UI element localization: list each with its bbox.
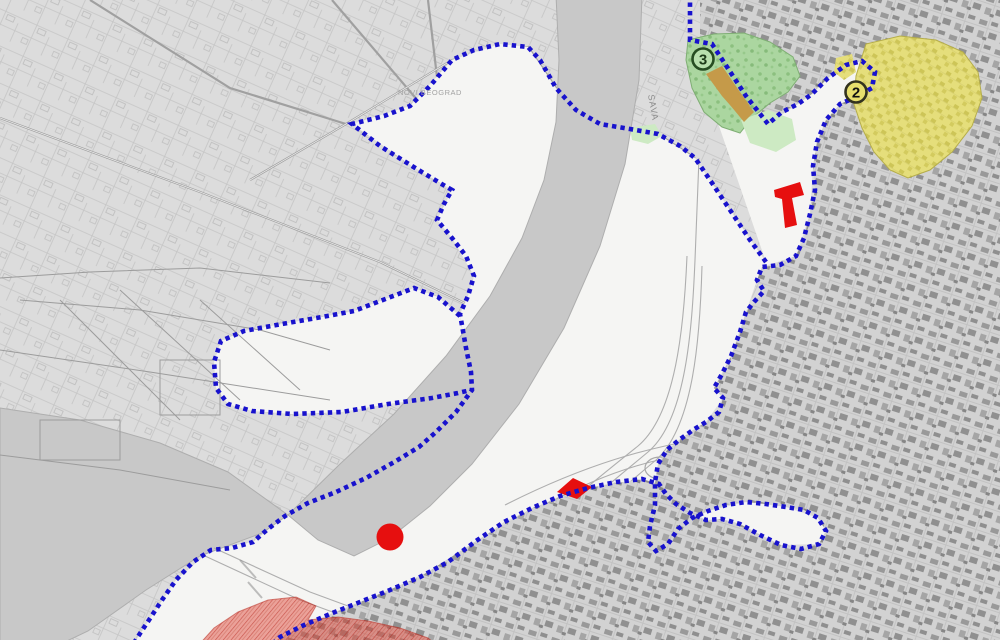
marker-2-number: 2 — [852, 84, 860, 101]
marker-3-badge: 3 — [693, 49, 714, 70]
map-canvas: 3 2 SAVA NOVI BEOGRAD — [0, 0, 1000, 640]
red-site-circle — [377, 524, 404, 551]
marker-3-number: 3 — [699, 51, 707, 68]
district-label: NOVI BEOGRAD — [398, 88, 462, 97]
marker-2-badge: 2 — [846, 82, 867, 103]
plan-map-svg: 3 2 SAVA NOVI BEOGRAD — [0, 0, 1000, 640]
